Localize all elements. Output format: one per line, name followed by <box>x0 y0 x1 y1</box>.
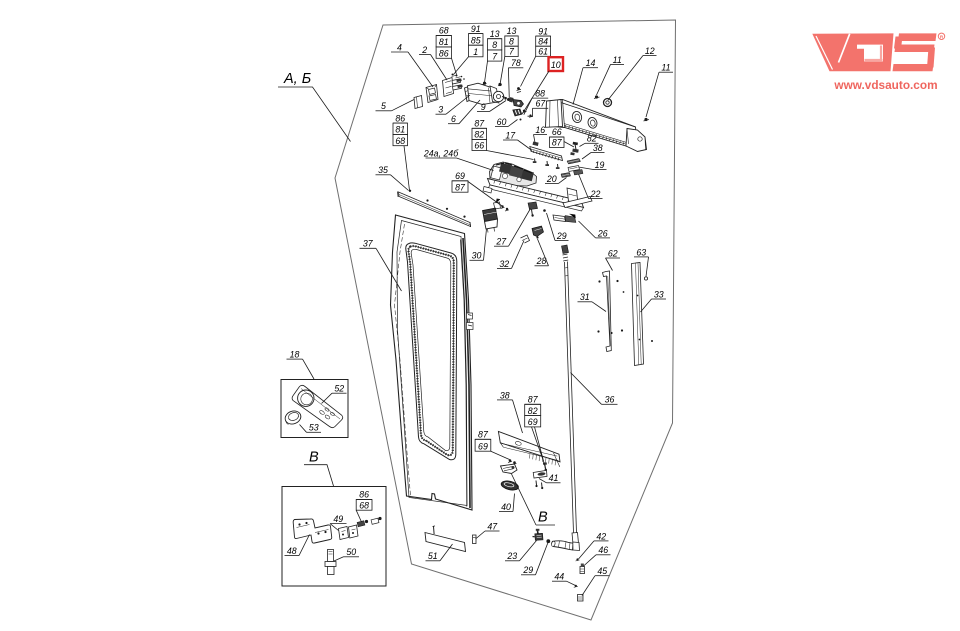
svg-text:69: 69 <box>455 171 465 181</box>
svg-text:13: 13 <box>490 29 500 39</box>
svg-text:8: 8 <box>509 36 514 46</box>
svg-text:35: 35 <box>378 165 388 175</box>
svg-text:2: 2 <box>421 45 427 55</box>
svg-text:11: 11 <box>613 55 622 65</box>
svg-text:29: 29 <box>556 231 567 241</box>
svg-text:В: В <box>538 510 548 526</box>
svg-text:88: 88 <box>535 89 545 99</box>
svg-text:60: 60 <box>497 117 507 127</box>
svg-text:62: 62 <box>608 248 618 258</box>
svg-text:50: 50 <box>346 547 356 557</box>
svg-text:11: 11 <box>661 63 670 73</box>
svg-text:52: 52 <box>334 384 344 394</box>
svg-text:8: 8 <box>492 40 497 50</box>
svg-text:1: 1 <box>473 47 478 57</box>
svg-text:3: 3 <box>438 105 443 115</box>
svg-text:41: 41 <box>549 473 559 483</box>
svg-text:24а, 24б: 24а, 24б <box>423 148 459 158</box>
svg-text:20: 20 <box>546 174 557 184</box>
svg-text:87: 87 <box>478 430 489 440</box>
svg-text:68: 68 <box>439 26 449 36</box>
svg-text:91: 91 <box>471 24 481 34</box>
svg-text:9: 9 <box>481 102 486 112</box>
svg-text:19: 19 <box>595 160 605 170</box>
svg-text:www.vdsauto.com: www.vdsauto.com <box>833 78 937 92</box>
svg-text:53: 53 <box>309 423 319 433</box>
svg-text:82: 82 <box>474 130 484 140</box>
svg-text:63: 63 <box>636 247 646 257</box>
svg-text:87: 87 <box>552 138 563 148</box>
svg-text:6: 6 <box>451 114 456 124</box>
svg-text:30: 30 <box>472 251 482 261</box>
svg-text:38: 38 <box>500 390 510 400</box>
svg-text:В: В <box>309 450 319 466</box>
svg-text:22: 22 <box>590 189 601 199</box>
svg-text:69: 69 <box>528 417 538 427</box>
svg-text:37: 37 <box>363 239 374 249</box>
svg-text:12: 12 <box>645 46 655 56</box>
svg-text:А, Б: А, Б <box>283 71 311 87</box>
svg-text:51: 51 <box>428 551 438 561</box>
svg-text:67: 67 <box>535 99 546 109</box>
svg-text:10: 10 <box>551 60 561 70</box>
svg-text:36: 36 <box>605 395 615 405</box>
svg-text:45: 45 <box>597 566 607 576</box>
svg-text:81: 81 <box>439 37 449 47</box>
svg-text:26: 26 <box>597 228 608 238</box>
svg-text:23: 23 <box>506 551 517 561</box>
svg-text:42: 42 <box>596 531 606 541</box>
svg-text:48: 48 <box>287 546 297 556</box>
svg-text:87: 87 <box>455 182 466 192</box>
svg-text:38: 38 <box>593 143 603 153</box>
svg-text:78: 78 <box>511 58 521 68</box>
svg-text:33: 33 <box>654 289 664 299</box>
svg-text:69: 69 <box>478 441 488 451</box>
svg-text:17: 17 <box>505 130 516 140</box>
svg-text:61: 61 <box>538 47 548 57</box>
svg-text:4: 4 <box>397 42 402 52</box>
svg-text:86: 86 <box>359 490 369 500</box>
svg-text:46: 46 <box>598 545 608 555</box>
svg-text:85: 85 <box>471 35 481 45</box>
svg-text:14: 14 <box>586 58 596 68</box>
svg-text:29: 29 <box>522 565 533 575</box>
svg-text:49: 49 <box>333 514 343 524</box>
svg-text:5: 5 <box>381 101 386 111</box>
svg-text:86: 86 <box>395 113 405 123</box>
svg-text:31: 31 <box>580 292 590 302</box>
svg-text:86: 86 <box>439 49 449 59</box>
svg-text:32: 32 <box>499 259 509 269</box>
svg-text:27: 27 <box>495 237 507 247</box>
svg-text:66: 66 <box>474 141 484 151</box>
svg-text:40: 40 <box>501 502 511 512</box>
svg-text:44: 44 <box>554 572 564 582</box>
svg-text:18: 18 <box>290 350 300 360</box>
svg-text:68: 68 <box>359 500 369 510</box>
svg-text:13: 13 <box>507 26 517 36</box>
svg-text:16: 16 <box>535 125 545 135</box>
svg-text:66: 66 <box>552 127 562 137</box>
svg-text:82: 82 <box>528 406 538 416</box>
svg-text:68: 68 <box>395 136 405 146</box>
svg-text:87: 87 <box>528 395 539 405</box>
svg-text:81: 81 <box>395 125 405 135</box>
svg-text:87: 87 <box>474 119 485 129</box>
svg-text:91: 91 <box>538 26 548 36</box>
svg-text:84: 84 <box>538 36 548 46</box>
svg-text:47: 47 <box>487 521 498 531</box>
